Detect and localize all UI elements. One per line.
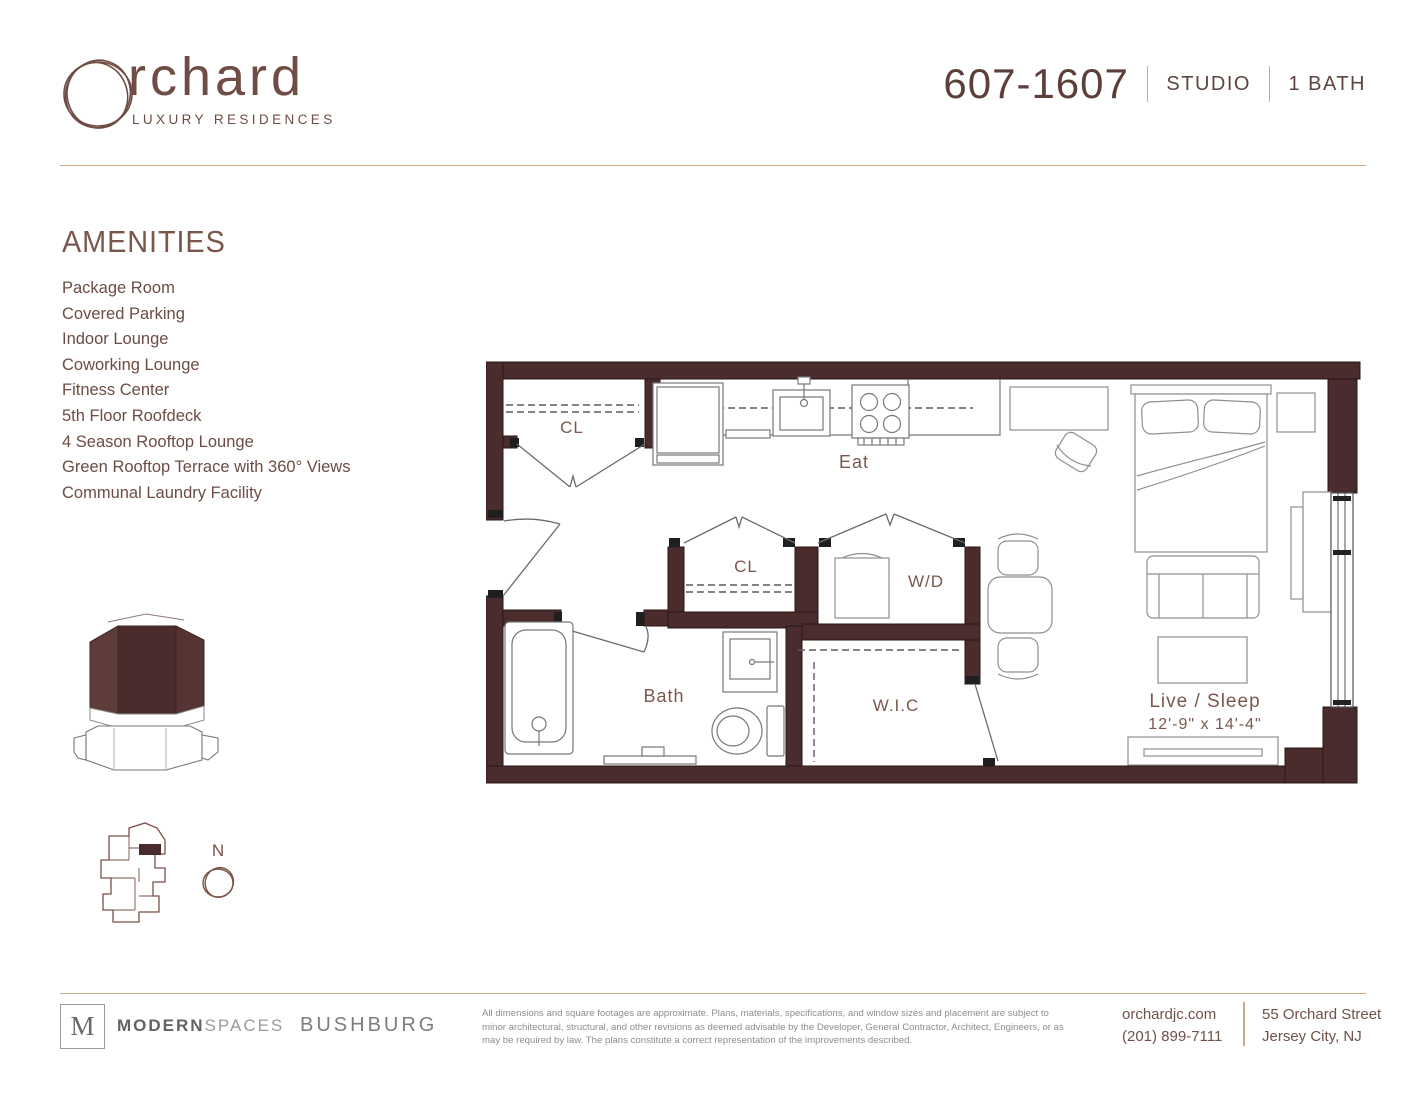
flyer-page: rchard LUXURY RESIDENCES 607-1607 STUDIO… [0,0,1426,1094]
amenity-item: Coworking Lounge [62,353,350,379]
contact-web-phone: orchardjc.com (201) 899-7111 [1122,1004,1222,1048]
amenity-item: 4 Season Rooftop Lounge [62,430,350,456]
bath-label: Bath [643,686,684,706]
floorplan-drawing: CL Eat CL W/D Bath W.I.C Live / Sleep 12… [486,360,1366,785]
washer-dryer-label: W/D [908,572,944,591]
legal-disclaimer: All dimensions and square footages are a… [482,1007,1066,1048]
unit-type: STUDIO [1166,73,1251,96]
phone-number: (201) 899-7111 [1122,1026,1222,1048]
unit-bath: 1 BATH [1288,73,1366,96]
address-line2: Jersey City, NJ [1262,1026,1381,1048]
amenities-heading: AMENITIES [62,224,226,260]
amenities-list: Package Room Covered Parking Indoor Loun… [62,276,350,506]
orchard-ring-icon [58,54,138,134]
brand-logo: rchard LUXURY RESIDENCES [58,52,398,136]
kitchen-fixtures [653,377,1000,465]
amenity-item: Covered Parking [62,302,350,328]
unit-number: 607-1607 [943,60,1129,108]
keyplan-icon [95,820,195,938]
building-illustration-icon [70,610,235,795]
compass-icon: N [196,840,242,906]
closet-mid-label: CL [734,557,758,576]
divider [1243,1002,1245,1046]
brand-tagline: LUXURY RESIDENCES [132,112,336,127]
address-line1: 55 Orchard Street [1262,1004,1381,1026]
amenity-item: 5th Floor Roofdeck [62,404,350,430]
header-rule [60,165,1366,166]
modern-spaces-logo-icon: M [60,1004,105,1049]
website-link: orchardjc.com [1122,1004,1222,1026]
amenity-item: Green Rooftop Terrace with 360° Views [62,455,350,481]
closet-top-label: CL [560,418,584,437]
modern-spaces-logo-letter: M [70,1011,94,1042]
window [1331,493,1353,707]
live-sleep-label: Live / Sleep [1149,691,1260,712]
amenity-item: Communal Laundry Facility [62,481,350,507]
modern-spaces-bold: MODERN [117,1016,205,1035]
unit-info: 607-1607 STUDIO 1 BATH [943,60,1366,108]
live-sleep-dims: 12'-9" x 14'-4" [1148,716,1261,733]
divider [1269,66,1271,102]
modern-spaces-wordmark: MODERNSPACES [117,1016,284,1036]
modern-spaces-light: SPACES [205,1016,285,1035]
compass-north-label: N [212,841,224,860]
wic-label: W.I.C [873,696,920,715]
contact-address: 55 Orchard Street Jersey City, NJ [1262,1004,1381,1048]
divider [1147,66,1149,102]
brand-wordmark: rchard [128,46,305,108]
amenity-item: Indoor Lounge [62,327,350,353]
eat-label: Eat [839,452,869,472]
footer-rule [60,993,1366,994]
amenity-item: Fitness Center [62,378,350,404]
bushburg-wordmark: BUSHBURG [300,1014,437,1037]
amenity-item: Package Room [62,276,350,302]
